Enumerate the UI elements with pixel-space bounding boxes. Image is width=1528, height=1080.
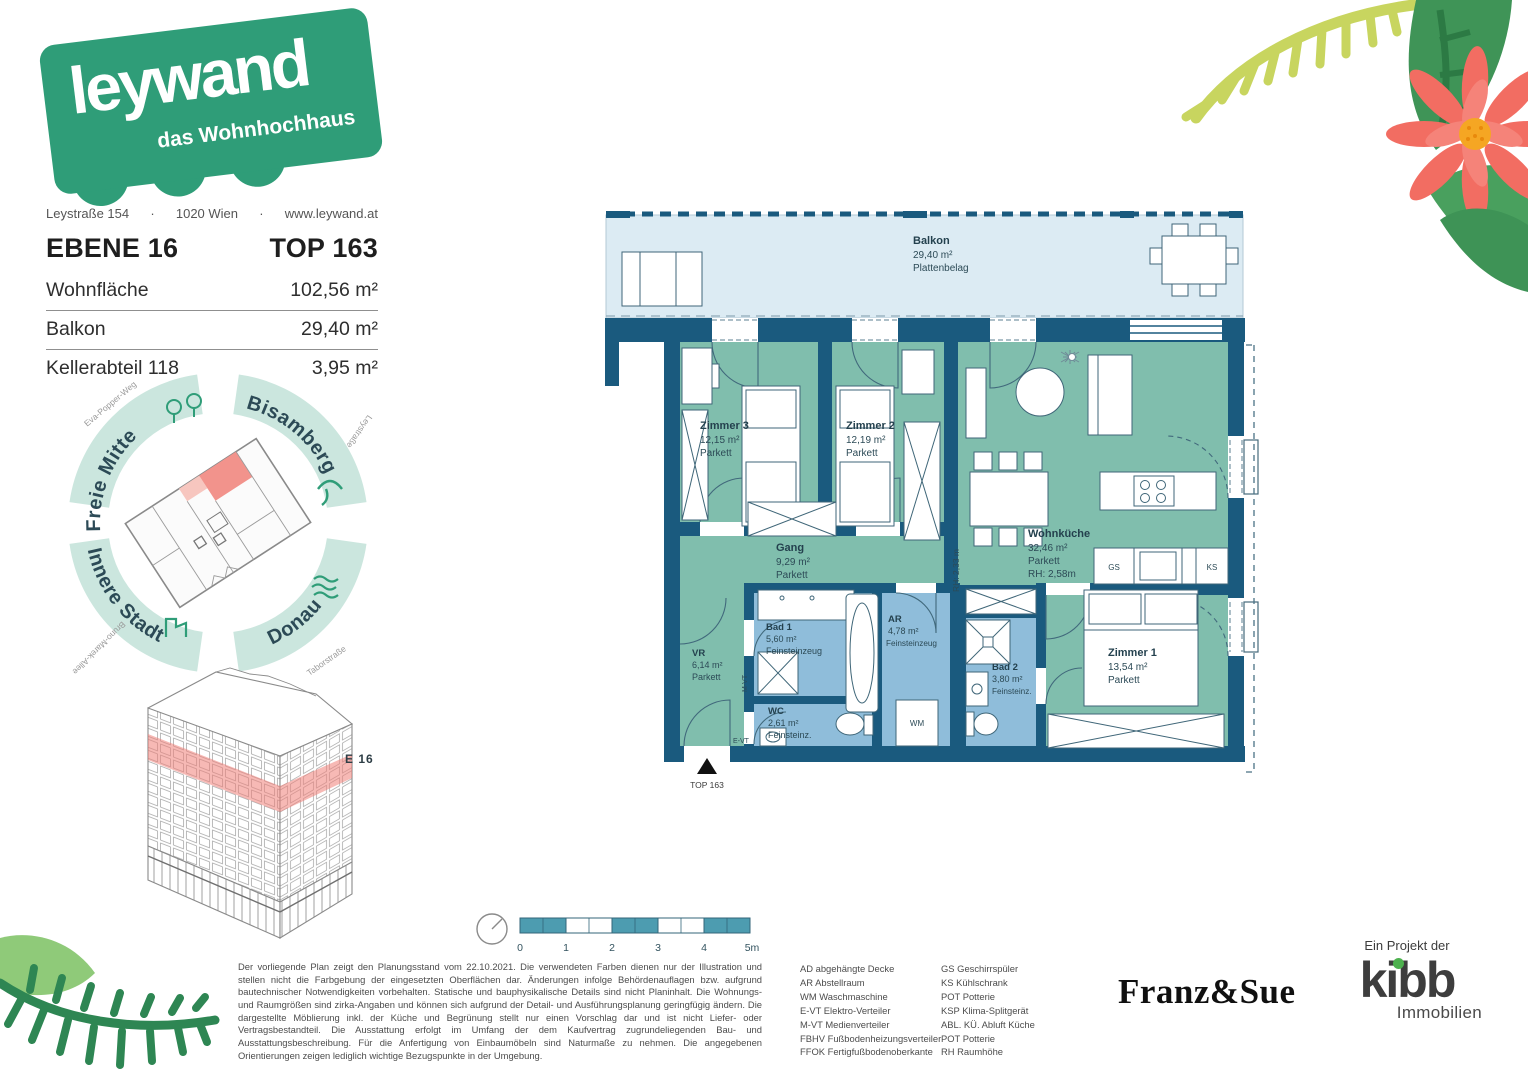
project-prefix: Ein Projekt der [1332, 938, 1482, 953]
gang-wardrobe [748, 502, 836, 536]
svg-text:12,15 m²: 12,15 m² [700, 435, 740, 446]
svg-text:Bad 1: Bad 1 [766, 622, 793, 633]
legend-item: POT Potterie [941, 1032, 1051, 1046]
svg-text:Bad 2: Bad 2 [992, 662, 1018, 673]
foliage-top-right-decoration [1178, 0, 1528, 300]
scale-bar: 0 1 2 3 4 5m [477, 914, 760, 954]
svg-text:5,60 m²: 5,60 m² [766, 634, 797, 644]
legend-item: E-VT Elektro-Verteiler [800, 1004, 938, 1018]
tag-evt: E-VT [733, 738, 750, 745]
scale-tick: 0 [517, 942, 523, 954]
svg-text:Parkett: Parkett [1028, 556, 1060, 567]
legend-column-1: AD abgehängte Decke AR Abstellraum WM Wa… [800, 962, 938, 1059]
svg-text:4,78 m²: 4,78 m² [888, 626, 919, 636]
legend-item: FBHV Fußbodenheizungsverteiler [800, 1032, 938, 1046]
svg-text:Zimmer 2: Zimmer 2 [846, 420, 895, 432]
legend-item: AR Abstellraum [800, 976, 938, 990]
scale-tick: 5m [745, 942, 760, 954]
svg-text:9,29 m²: 9,29 m² [776, 557, 811, 568]
tag-wm: WM [910, 719, 925, 728]
svg-text:12,19 m²: 12,19 m² [846, 435, 886, 446]
svg-text:Plattenbelag: Plattenbelag [913, 263, 969, 274]
svg-text:Parkett: Parkett [1108, 675, 1140, 686]
svg-text:13,54 m²: 13,54 m² [1108, 662, 1148, 673]
kibb-wordmark: kibb [1360, 955, 1455, 1005]
tag-gs: GS [1108, 563, 1120, 572]
svg-text:Zimmer 1: Zimmer 1 [1108, 647, 1157, 659]
legend-item: POT Potterie [941, 990, 1051, 1004]
lounger [622, 252, 702, 306]
legend-column-2: GS Geschirrspüler KS Kühlschrank POT Pot… [941, 962, 1051, 1059]
svg-text:Feinsteinz.: Feinsteinz. [992, 687, 1032, 696]
tag-mvt: M-VT [742, 674, 749, 692]
svg-text:Zimmer 3: Zimmer 3 [700, 420, 749, 432]
leaf-icon [1440, 209, 1528, 292]
svg-text:Parkett: Parkett [700, 448, 732, 459]
legend-item: M-VT Medienverteiler [800, 1018, 938, 1032]
legend-item: GS Geschirrspüler [941, 962, 1051, 976]
legend-item: WM Waschmaschine [800, 990, 938, 1004]
legend-item: AD abgehängte Decke [800, 962, 938, 976]
svg-text:Gang: Gang [776, 542, 804, 554]
floorplan-sheet: leywand das Wohnhochhaus Leystraße 154 ·… [0, 0, 1528, 1080]
svg-text:32,46 m²: 32,46 m² [1028, 543, 1068, 554]
svg-text:RH: 2,58m: RH: 2,58m [1028, 569, 1076, 580]
svg-text:Balkon: Balkon [913, 235, 950, 247]
svg-text:Wohnküche: Wohnküche [1028, 528, 1090, 540]
tag-ks: KS [1207, 563, 1218, 572]
tag-rh-corridor: RH: 2,33 m [951, 549, 961, 592]
svg-text:6,14 m²: 6,14 m² [692, 660, 723, 670]
bad2-wardrobe [966, 589, 1036, 614]
legend-item: KSP Klima-Splitgerät [941, 1004, 1051, 1018]
fern-leaf-icon [1186, 5, 1413, 118]
svg-text:2,61 m²: 2,61 m² [768, 718, 799, 728]
svg-text:Feinsteinzeug: Feinsteinzeug [766, 646, 822, 656]
entrance-marker: TOP 163 [690, 758, 724, 790]
neighbour-boundary-line [1246, 345, 1254, 772]
franz-sue-logo: Franz&Sue [1118, 972, 1328, 1012]
scale-tick: 3 [655, 942, 661, 954]
kibb-green-dot-icon [1393, 958, 1404, 969]
legend-item: FFOK Fertigfußbodenoberkante [800, 1045, 938, 1059]
svg-text:Feinsteinz.: Feinsteinz. [768, 730, 812, 740]
foliage-bottom-left-decoration [0, 928, 240, 1080]
fern-leaf-icon [0, 968, 215, 1065]
legend-item: ABL. KÜ. Abluft Küche [941, 1018, 1051, 1032]
kibb-text: kibb [1360, 952, 1455, 1008]
entrance-label: TOP 163 [690, 780, 724, 790]
svg-text:WC: WC [768, 706, 784, 717]
svg-text:AR: AR [888, 614, 902, 625]
scale-tick: 1 [563, 942, 569, 954]
scale-tick: 4 [701, 942, 707, 954]
svg-text:Parkett: Parkett [776, 570, 808, 581]
svg-text:Feinsteinzeug: Feinsteinzeug [886, 639, 937, 648]
scale-tick: 2 [609, 942, 615, 954]
svg-text:VR: VR [692, 648, 705, 659]
legend-item: KS Kühlschrank [941, 976, 1051, 990]
legend-item: RH Raumhöhe [941, 1045, 1051, 1059]
svg-text:Parkett: Parkett [692, 672, 721, 682]
svg-text:3,80 m²: 3,80 m² [992, 674, 1023, 684]
kibb-logo-block: Ein Projekt der kibb Immobilien [1332, 938, 1482, 1023]
svg-text:Parkett: Parkett [846, 448, 878, 459]
leaf-icon [0, 935, 95, 995]
plan-disclaimer: Der vorliegende Plan zeigt den Planungss… [238, 961, 762, 1063]
svg-text:29,40 m²: 29,40 m² [913, 250, 953, 261]
